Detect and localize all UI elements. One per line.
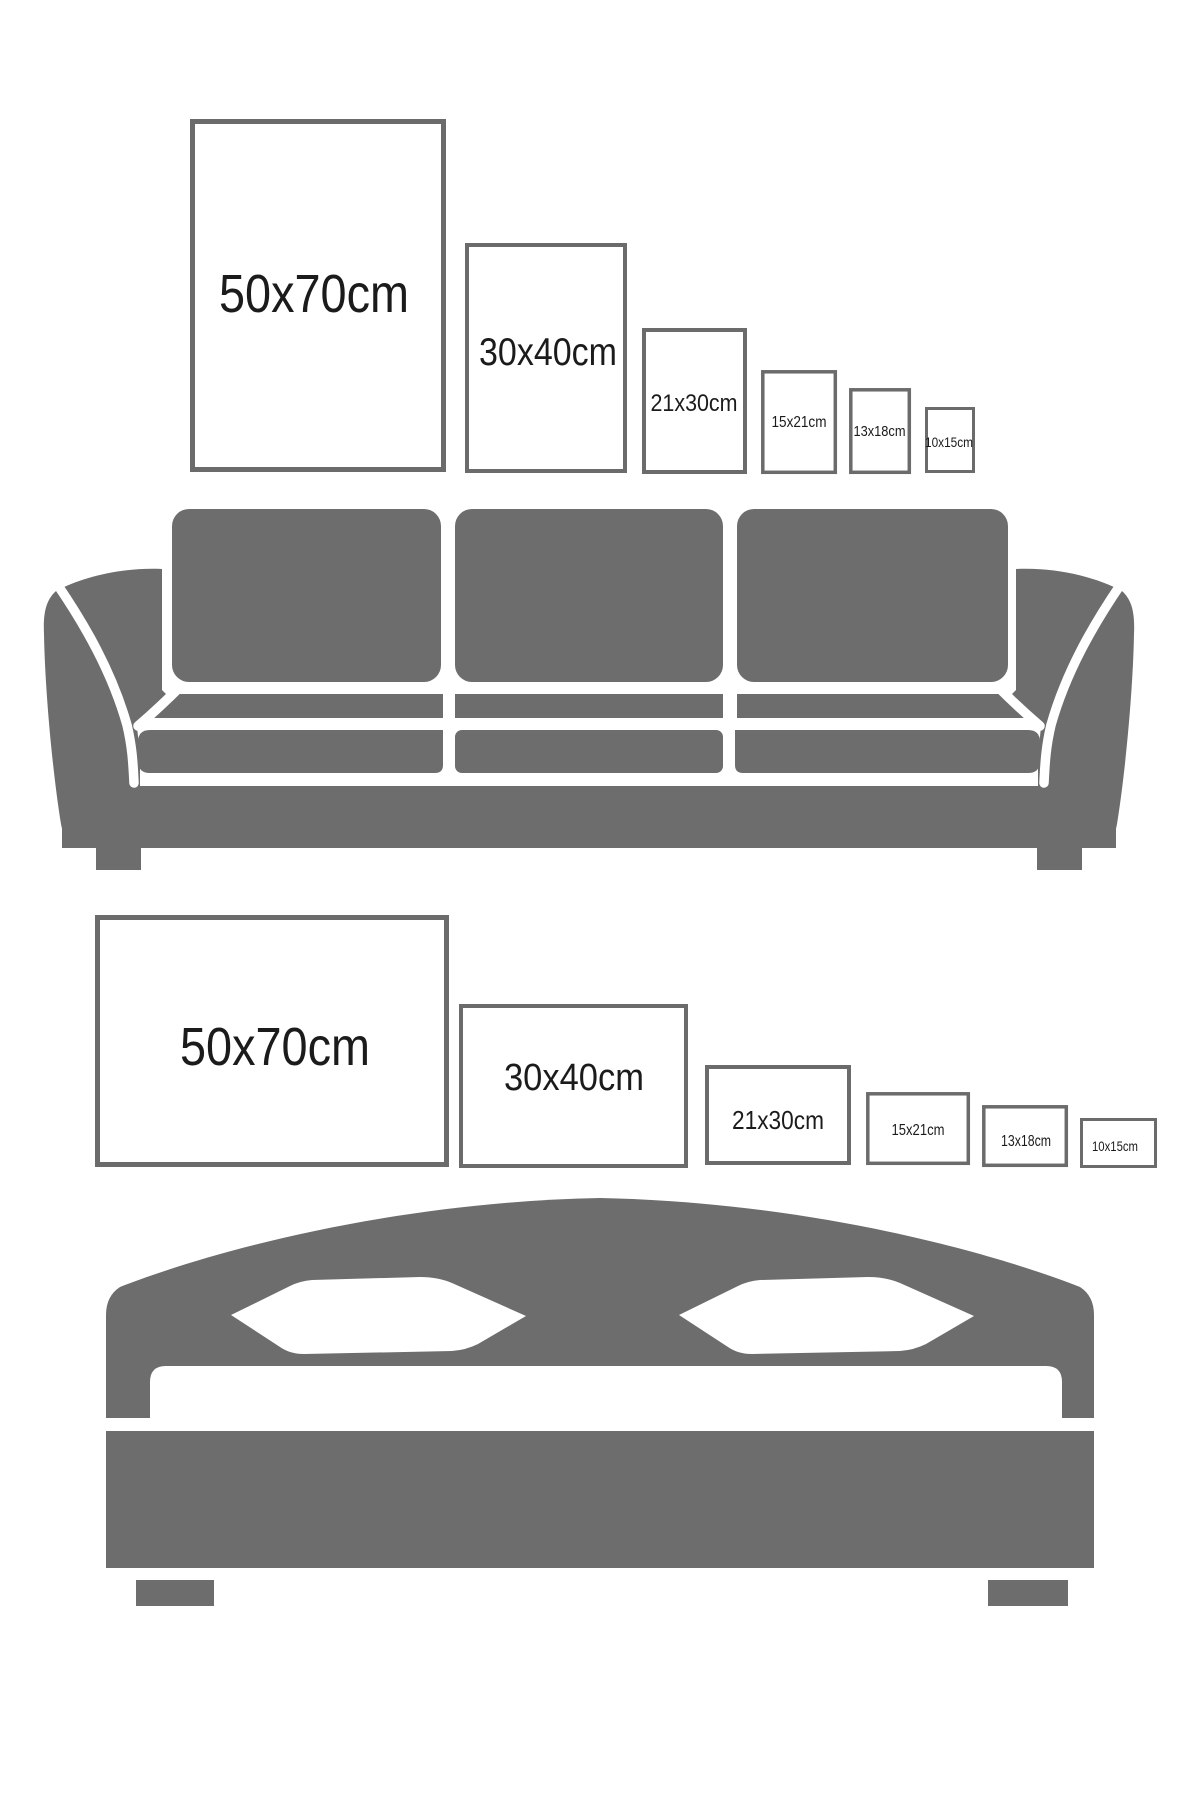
svg-text:15x21cm: 15x21cm <box>772 414 827 431</box>
svg-text:50x70cm: 50x70cm <box>219 264 409 324</box>
svg-text:30x40cm: 30x40cm <box>504 1057 644 1099</box>
svg-text:21x30cm: 21x30cm <box>651 390 738 417</box>
svg-text:30x40cm: 30x40cm <box>479 331 617 374</box>
svg-text:50x70cm: 50x70cm <box>180 1017 370 1077</box>
svg-text:21x30cm: 21x30cm <box>732 1105 824 1135</box>
svg-text:13x18cm: 13x18cm <box>1001 1133 1051 1150</box>
svg-text:10x15cm: 10x15cm <box>925 435 973 450</box>
svg-text:13x18cm: 13x18cm <box>854 423 906 440</box>
svg-text:15x21cm: 15x21cm <box>892 1122 945 1139</box>
svg-text:10x15cm: 10x15cm <box>1092 1138 1138 1154</box>
